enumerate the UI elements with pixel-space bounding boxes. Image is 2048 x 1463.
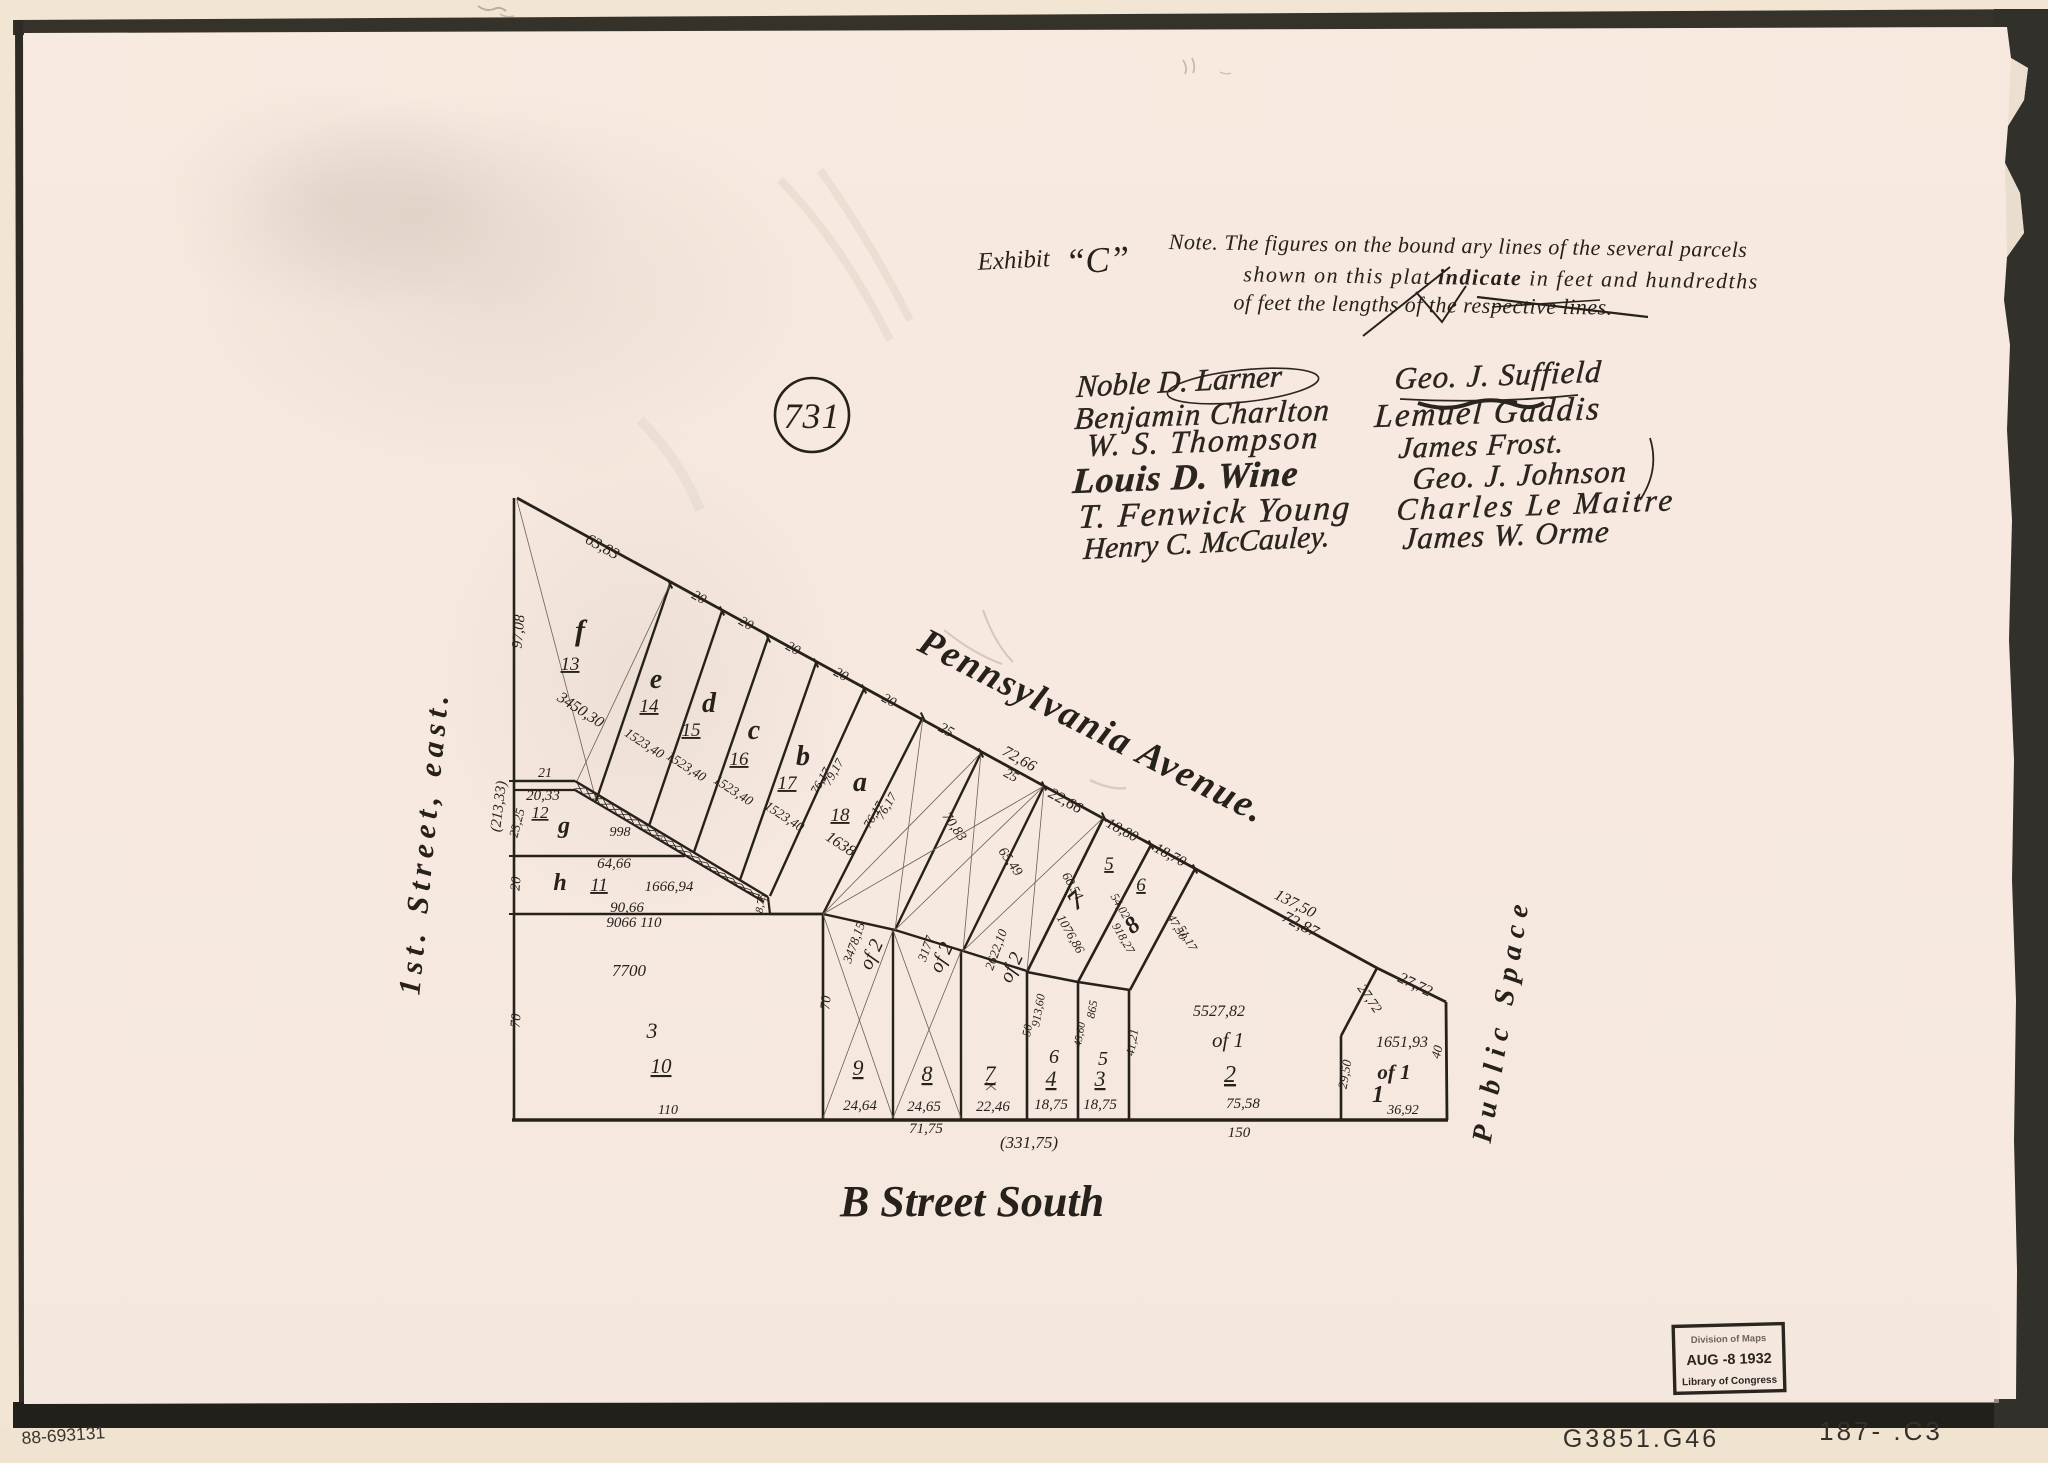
svg-text:5527,82: 5527,82 [1193,1003,1245,1020]
svg-text:97,08: 97,08 [510,614,529,650]
svg-text:3: 3 [646,1018,658,1043]
svg-text:150: 150 [1228,1125,1251,1141]
svg-text:g: g [557,813,570,839]
svg-text:13: 13 [561,654,580,675]
svg-text:22,46: 22,46 [976,1099,1010,1115]
svg-text:2: 2 [1224,1062,1236,1088]
svg-text:12: 12 [532,803,550,822]
svg-text:24,65: 24,65 [907,1099,941,1115]
svg-text:998: 998 [610,825,631,840]
svg-text:7: 7 [985,1061,997,1086]
svg-text:110: 110 [658,1103,678,1118]
svg-text:of feet the lengths of the res: of feet the lengths of the respective li… [1233,289,1613,319]
svg-text:James W. Orme: James W. Orme [1402,514,1612,556]
svg-text:16: 16 [730,749,750,770]
svg-text:Division of Maps: Division of Maps [1691,1333,1767,1346]
svg-text:731: 731 [784,396,841,436]
svg-text:70: 70 [818,995,834,1010]
svg-text:4: 4 [1046,1066,1057,1091]
svg-text:187- .C3: 187- .C3 [1819,1416,1943,1446]
svg-text:a: a [853,767,867,798]
svg-text:24,64: 24,64 [843,1098,877,1114]
svg-text:“C”: “C” [1064,238,1130,281]
svg-text:Exhibit: Exhibit [976,245,1052,276]
svg-text:17: 17 [778,773,799,794]
svg-text:1651,93: 1651,93 [1376,1034,1428,1051]
svg-text:G3851.G46: G3851.G46 [1563,1425,1719,1453]
svg-text:14: 14 [640,696,660,717]
svg-text:90,66: 90,66 [610,900,644,916]
svg-text:1666,94: 1666,94 [645,879,694,895]
svg-text:20: 20 [508,876,524,891]
svg-text:9: 9 [853,1055,864,1080]
svg-text:e: e [650,664,662,695]
svg-text:b: b [796,741,810,772]
svg-text:B Street South: B Street South [839,1177,1104,1226]
svg-text:7700: 7700 [612,961,647,980]
svg-text:3: 3 [1094,1066,1106,1091]
svg-text:5: 5 [1104,854,1114,875]
svg-text:36,92: 36,92 [1386,1103,1419,1118]
svg-text:Geo. J. Suffield: Geo. J. Suffield [1394,354,1603,396]
svg-text:9066 110: 9066 110 [606,915,662,931]
svg-text:8: 8 [922,1061,933,1086]
svg-text:h: h [553,870,566,896]
svg-text:6: 6 [1136,875,1146,896]
svg-text:10: 10 [651,1054,673,1078]
svg-text:20,33: 20,33 [526,788,560,804]
svg-text:18,75: 18,75 [1083,1097,1117,1113]
svg-text:18,75: 18,75 [1034,1097,1068,1113]
svg-text:64,66: 64,66 [597,856,631,872]
svg-text:of 1: of 1 [1212,1028,1244,1052]
svg-text:of 1: of 1 [1377,1060,1410,1084]
svg-text:AUG -8 1932: AUG -8 1932 [1686,1351,1772,1369]
svg-text:70: 70 [508,1013,524,1028]
svg-text:6: 6 [1049,1046,1059,1068]
svg-text:18: 18 [831,805,851,826]
svg-text:71,75: 71,75 [909,1121,943,1137]
svg-text:11: 11 [590,875,608,896]
svg-text:(331,75): (331,75) [1000,1133,1058,1152]
svg-text:21: 21 [538,766,552,781]
svg-text:15: 15 [682,720,701,741]
svg-text:c: c [748,715,761,746]
svg-text:75,58: 75,58 [1226,1096,1260,1112]
svg-text:d: d [702,688,717,719]
svg-text:1: 1 [1372,1082,1384,1108]
